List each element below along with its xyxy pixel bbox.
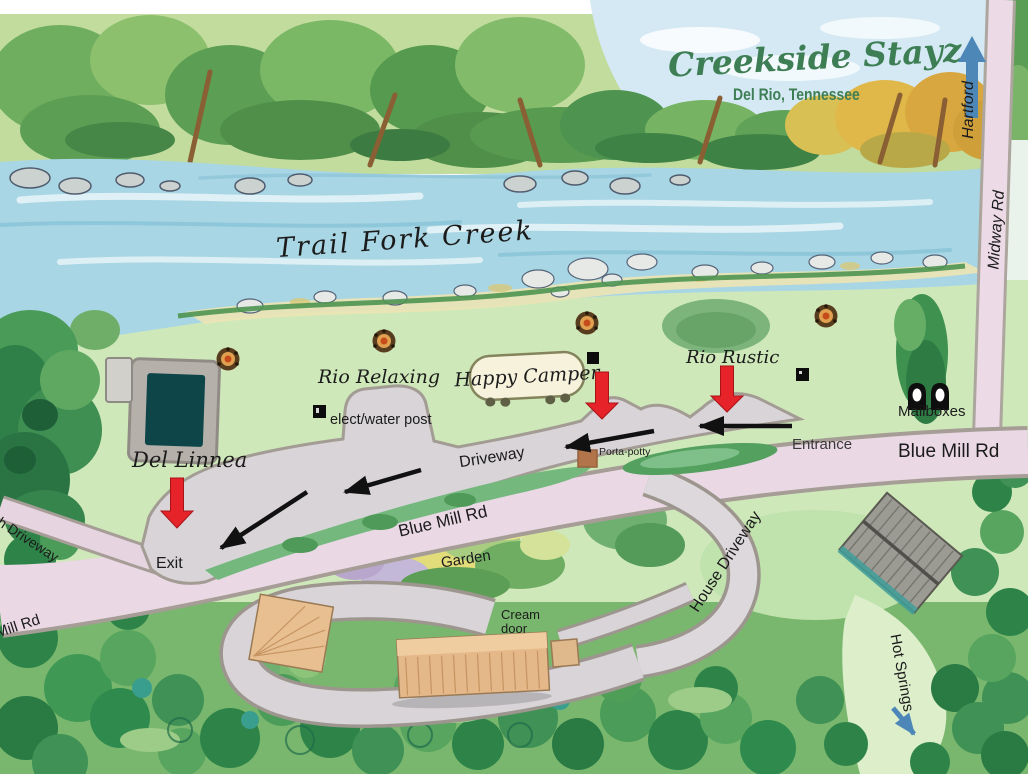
porta-potty-icon	[578, 450, 597, 467]
site-label-del-linnea: Del Linnea	[132, 449, 247, 472]
site-label-rio-rustic: Rio Rustic	[686, 348, 779, 368]
map-canvas: Creekside Stayz Del Rio, Tennessee Hartf…	[0, 0, 1028, 774]
site-label-elect-water-post: elect/water post	[330, 413, 432, 429]
site-label-rio-relaxing: Rio Relaxing	[318, 367, 440, 388]
round-tree	[662, 299, 770, 353]
tree-line	[0, 0, 1028, 174]
site-label-mailboxes: Mailboxes	[898, 404, 966, 421]
road-label-blue-mill-east: Blue Mill Rd	[898, 442, 999, 463]
pool	[145, 373, 205, 447]
road-label-hartford: Hartford	[960, 81, 978, 139]
access-label-entrance: Entrance	[792, 437, 852, 454]
utility-marker	[796, 368, 809, 381]
pool-shed	[106, 358, 132, 402]
shed-square	[551, 639, 579, 667]
site-label-cream-door: Cream door	[501, 608, 553, 637]
long-barn	[389, 632, 552, 711]
page-subtitle: Del Rio, Tennessee	[733, 86, 860, 105]
utility-marker	[313, 405, 326, 418]
access-label-exit: Exit	[156, 555, 183, 573]
small-barn	[249, 594, 333, 672]
site-label-porta-potty: Porta-potty	[599, 447, 650, 459]
